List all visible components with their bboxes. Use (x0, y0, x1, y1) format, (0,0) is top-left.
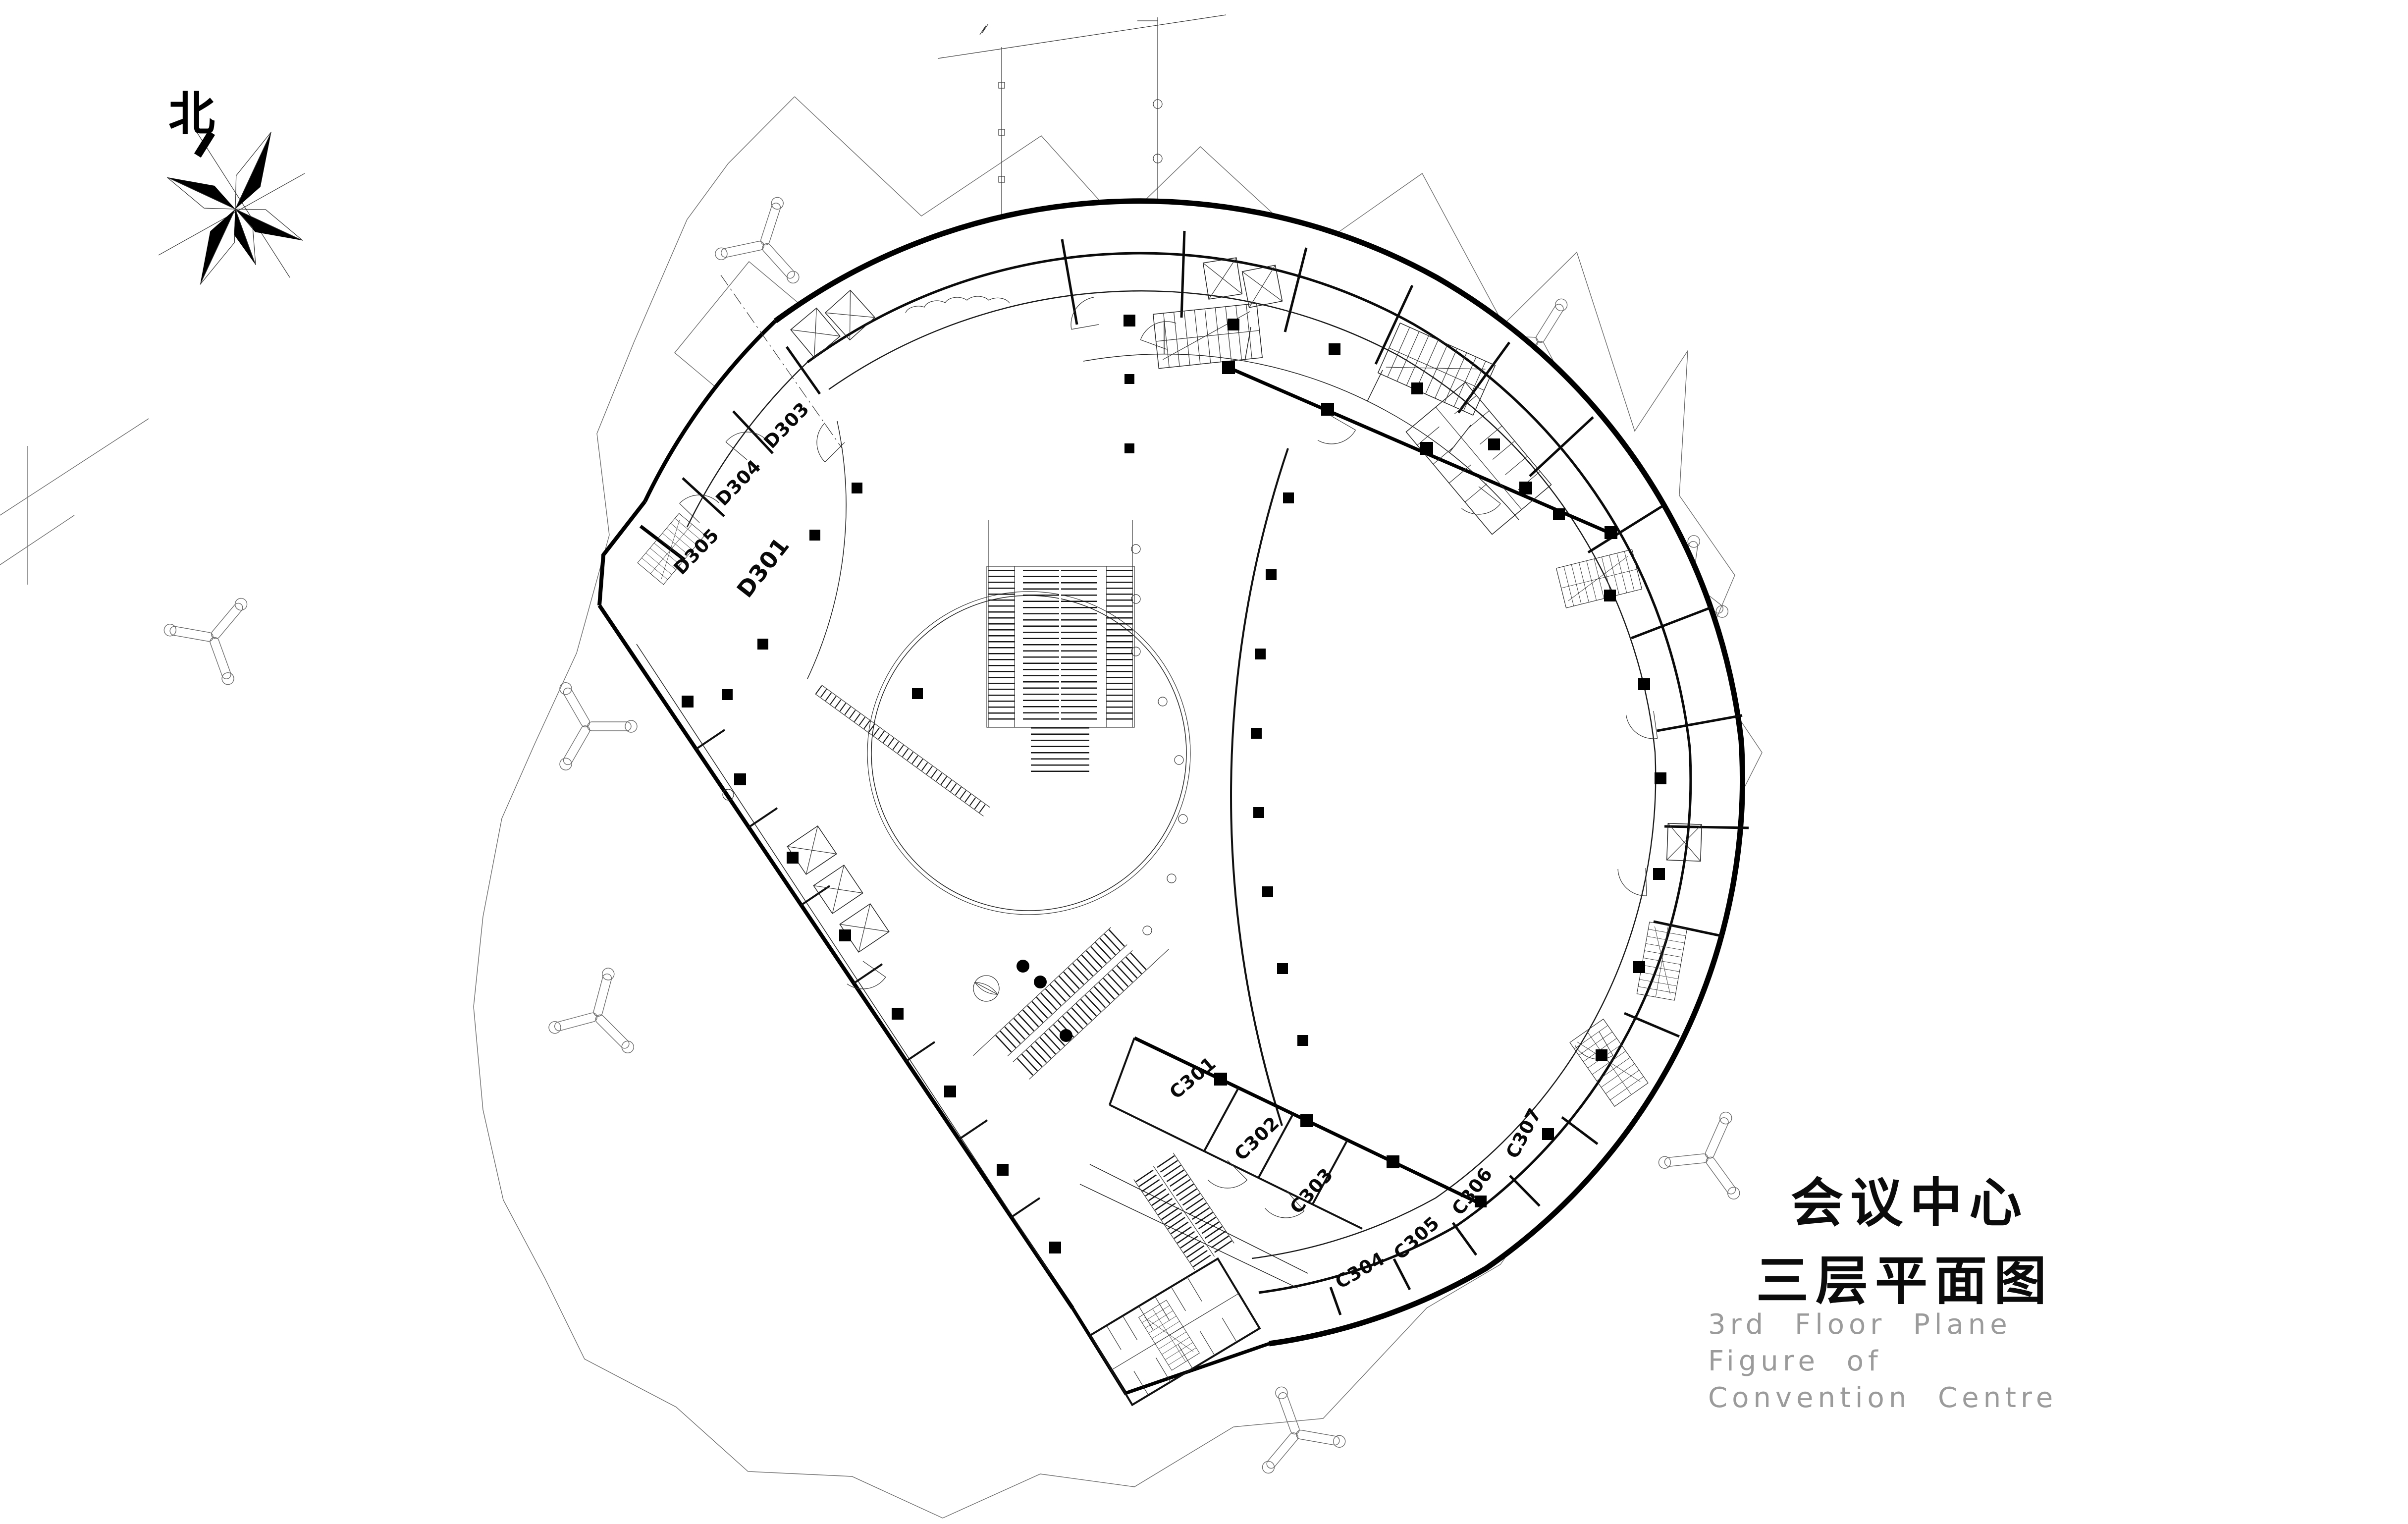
title-zh-line1: 会议中心 (1791, 1175, 2029, 1233)
floorplan-canvas: D301 D303 D304 D305 C301 C302 C303 C304 … (0, 0, 2408, 1524)
y-column-icon (523, 660, 642, 775)
north-compass: 北 (159, 89, 308, 290)
title-en-line2: Figure of (1708, 1345, 1882, 1377)
y-column-icon (1236, 1371, 1350, 1477)
y-column-icon (711, 183, 823, 287)
y-column-icon (545, 956, 654, 1057)
title-en-line3: Convention Centre (1708, 1382, 2057, 1414)
title-block: 会议中心 三层平面图 3rd Floor Plane Figure of Con… (1708, 1175, 2057, 1414)
y-column-icon (159, 570, 280, 690)
north-compass-icon (159, 126, 308, 290)
floorplan-page: D301 D303 D304 D305 C301 C302 C303 C304 … (0, 0, 2408, 1524)
title-zh-line2: 三层平面图 (1756, 1252, 2053, 1310)
y-column-icon (1654, 1094, 1770, 1204)
title-en-line1: 3rd Floor Plane (1708, 1308, 2012, 1341)
